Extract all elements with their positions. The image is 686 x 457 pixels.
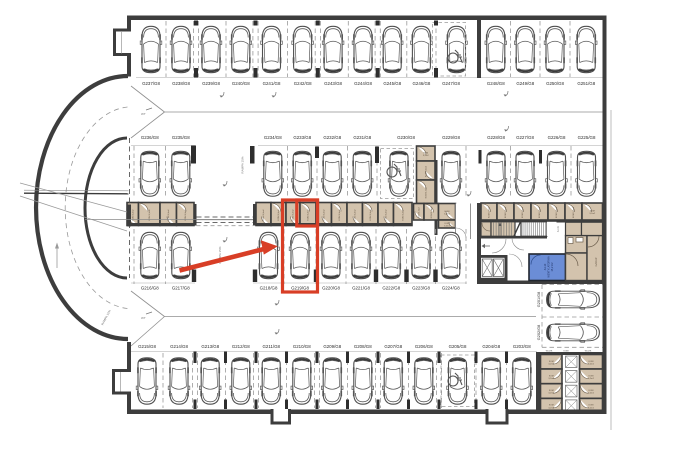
svg-text:KOM 3,2m2: KOM 3,2m2: [556, 206, 558, 218]
svg-text:G212/G8: G212/G8: [232, 344, 250, 349]
svg-text:G205/G8: G205/G8: [449, 344, 467, 349]
svg-text:G226/G8: G226/G8: [548, 135, 566, 140]
svg-text:G236/G8: G236/G8: [141, 135, 159, 140]
svg-text:G228/G8: G228/G8: [487, 135, 505, 140]
svg-text:KOM 3,2m2: KOM 3,2m2: [278, 209, 280, 221]
svg-text:KOM 3,2m2: KOM 3,2m2: [539, 206, 541, 218]
svg-text:G239/G8: G239/G8: [202, 81, 220, 86]
svg-text:G215/G8: G215/G8: [138, 344, 156, 349]
svg-text:G220/G8: G220/G8: [322, 286, 340, 291]
svg-text:KOM 3,2m2: KOM 3,2m2: [370, 209, 372, 221]
svg-text:G209/G8: G209/G8: [323, 344, 341, 349]
svg-text:3,2m2: 3,2m2: [588, 363, 595, 365]
svg-text:G244/G8: G244/G8: [354, 81, 372, 86]
svg-text:G216/G8: G216/G8: [141, 286, 159, 291]
svg-text:KOM 3,2m2: KOM 3,2m2: [402, 209, 404, 221]
svg-text:G201/G8: G201/G8: [537, 292, 541, 307]
svg-text:G235/G8: G235/G8: [172, 135, 190, 140]
svg-text:G242/G8: G242/G8: [294, 81, 312, 86]
svg-text:A1.01: A1.01: [557, 225, 560, 232]
svg-text:3,2m2: 3,2m2: [548, 393, 555, 395]
svg-text:KOM 3,2m2: KOM 3,2m2: [308, 209, 310, 221]
svg-text:G243/G8: G243/G8: [324, 81, 342, 86]
svg-text:G207/G8: G207/G8: [384, 344, 402, 349]
svg-text:G227/G8: G227/G8: [516, 135, 534, 140]
svg-text:G225/G8: G225/G8: [578, 135, 596, 140]
svg-text:G217/G8: G217/G8: [172, 286, 190, 291]
svg-text:G206/G8: G206/G8: [415, 344, 433, 349]
svg-text:3,2m2: 3,2m2: [444, 226, 451, 228]
svg-text:3,2m2: 3,2m2: [588, 393, 595, 395]
svg-text:G223/G8: G223/G8: [412, 286, 430, 291]
svg-text:G222/G8: G222/G8: [382, 286, 400, 291]
svg-text:KOM 3,2m2: KOM 3,2m2: [293, 209, 295, 221]
svg-text:KOM 3,2m2: KOM 3,2m2: [323, 209, 325, 221]
svg-text:G214/G8: G214/G8: [170, 344, 188, 349]
svg-text:KOM 3,2m2: KOM 3,2m2: [263, 209, 265, 221]
svg-text:G224/G8: G224/G8: [442, 286, 460, 291]
svg-text:G218/G8: G218/G8: [260, 286, 278, 291]
svg-text:G203/G8: G203/G8: [513, 344, 531, 349]
svg-text:3,2m2: 3,2m2: [588, 407, 595, 409]
svg-text:KOM 3,2m2: KOM 3,2m2: [431, 206, 433, 218]
svg-text:KOM 3,2m2: KOM 3,2m2: [354, 209, 356, 221]
svg-text:G221/G8: G221/G8: [352, 286, 370, 291]
svg-text:G211/G8: G211/G8: [263, 344, 281, 349]
svg-text:KOM 3,2m2: KOM 3,2m2: [385, 209, 387, 221]
svg-text:KOM 3,2m2: KOM 3,2m2: [168, 209, 170, 221]
svg-text:15,2 m2: 15,2 m2: [551, 262, 554, 272]
svg-text:KOM 3,2m2: KOM 3,2m2: [149, 209, 151, 221]
svg-text:KOM 3,2m2: KOM 3,2m2: [185, 209, 187, 221]
svg-text:G208/G8: G208/G8: [354, 344, 372, 349]
svg-text:G240/G8: G240/G8: [232, 81, 250, 86]
svg-text:KOM 3,2m2: KOM 3,2m2: [132, 209, 134, 221]
svg-text:3,2m2: 3,2m2: [548, 363, 555, 365]
svg-text:KOM 3,2m2: KOM 3,2m2: [489, 206, 491, 218]
svg-text:G249/G8: G249/G8: [516, 81, 534, 86]
svg-text:G210/G8: G210/G8: [293, 344, 311, 349]
svg-text:G248/G8: G248/G8: [487, 81, 505, 86]
svg-text:KOM 3,2m2: KOM 3,2m2: [339, 209, 341, 221]
svg-text:G245/G8: G245/G8: [383, 81, 401, 86]
svg-text:G219/G8: G219/G8: [291, 286, 309, 291]
svg-text:G238/G8: G238/G8: [172, 81, 190, 86]
svg-text:G241/G8: G241/G8: [263, 81, 281, 86]
svg-text:G231/G8: G231/G8: [353, 135, 371, 140]
svg-text:KOM 3,2m2: KOM 3,2m2: [522, 206, 524, 218]
svg-text:G247/G8: G247/G8: [442, 81, 460, 86]
svg-text:G213/G8: G213/G8: [201, 344, 219, 349]
svg-text:KOM 3,2m2: KOM 3,2m2: [425, 165, 427, 177]
svg-text:G229/G8: G229/G8: [442, 135, 460, 140]
svg-text:G230/G8: G230/G8: [397, 135, 415, 140]
svg-text:3,2m2: 3,2m2: [444, 213, 451, 215]
svg-text:G233/G8: G233/G8: [293, 135, 311, 140]
svg-text:RAMPA 15%: RAMPA 15%: [241, 156, 245, 173]
svg-text:3,2m2: 3,2m2: [423, 155, 430, 157]
svg-text:3,2m2: 3,2m2: [548, 407, 555, 409]
svg-text:3,2m2: 3,2m2: [589, 213, 596, 215]
svg-text:3,2m2: 3,2m2: [588, 378, 595, 380]
svg-text:G237/G8: G237/G8: [142, 81, 160, 86]
svg-text:G250/G8: G250/G8: [546, 81, 564, 86]
svg-text:WT: WT: [141, 112, 146, 116]
svg-text:GARAZ: GARAZ: [594, 257, 598, 266]
svg-text:KOM 3,2m2: KOM 3,2m2: [425, 186, 427, 198]
svg-text:G202/G8: G202/G8: [537, 325, 541, 340]
svg-text:G234/G8: G234/G8: [264, 135, 282, 140]
svg-text:G251/G8: G251/G8: [577, 81, 595, 86]
svg-text:G204/G8: G204/G8: [482, 344, 500, 349]
svg-text:3,2m2: 3,2m2: [548, 378, 555, 380]
svg-text:WT: WT: [141, 316, 146, 320]
svg-text:KOM 3,2m2: KOM 3,2m2: [418, 206, 420, 218]
svg-text:G246/G8: G246/G8: [412, 81, 430, 86]
svg-text:KOM 3,2m2: KOM 3,2m2: [573, 206, 575, 218]
svg-text:KOM 3,2m2: KOM 3,2m2: [505, 206, 507, 218]
svg-text:G232/G8: G232/G8: [323, 135, 341, 140]
